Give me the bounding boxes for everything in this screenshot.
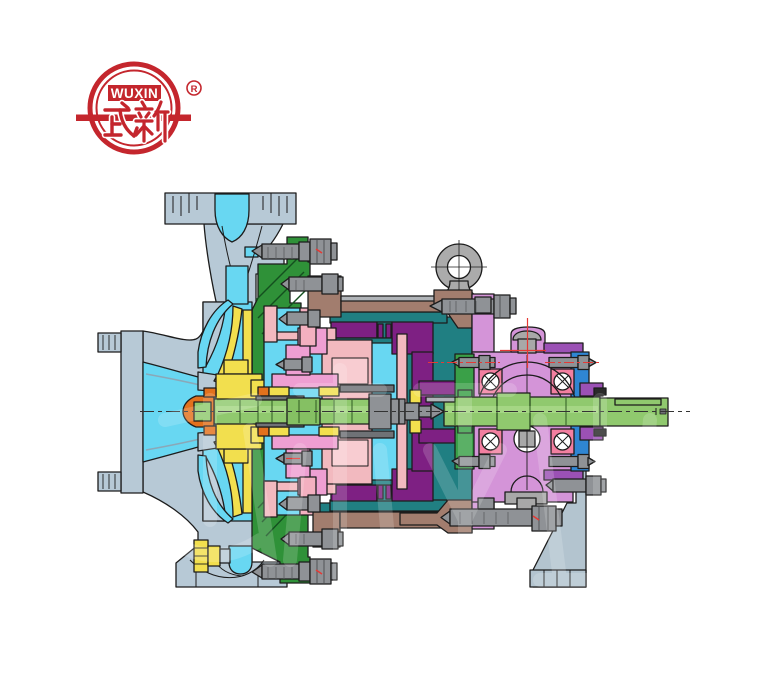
svg-text:WUXIN: WUXIN <box>111 86 159 101</box>
svg-text:R: R <box>191 84 198 95</box>
